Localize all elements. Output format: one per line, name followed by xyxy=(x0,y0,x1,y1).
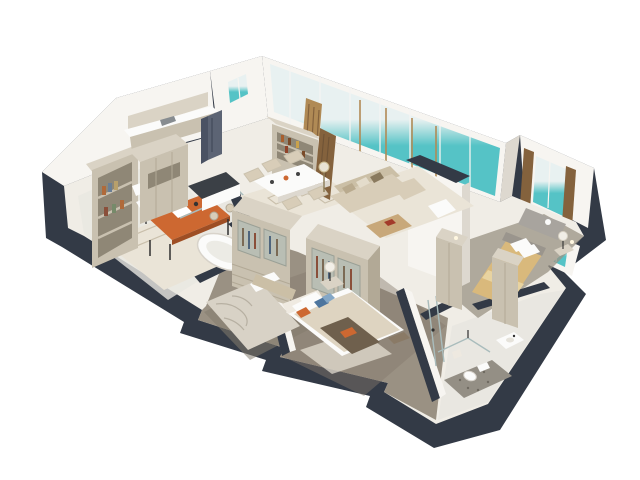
floor-plan-render xyxy=(0,0,640,480)
bar-stool xyxy=(210,212,218,220)
table-lamp xyxy=(559,232,568,241)
bookshelf xyxy=(86,146,142,268)
floor-plan-svg xyxy=(0,0,640,480)
table-decor xyxy=(284,176,289,181)
seat-pillow xyxy=(545,219,551,225)
wall-sconce xyxy=(454,236,458,240)
table-lamp xyxy=(325,262,335,272)
wall-sconce xyxy=(570,240,574,244)
living-master-wall-side xyxy=(462,182,470,286)
door-handle xyxy=(431,328,434,331)
desk-lamp xyxy=(194,202,198,206)
